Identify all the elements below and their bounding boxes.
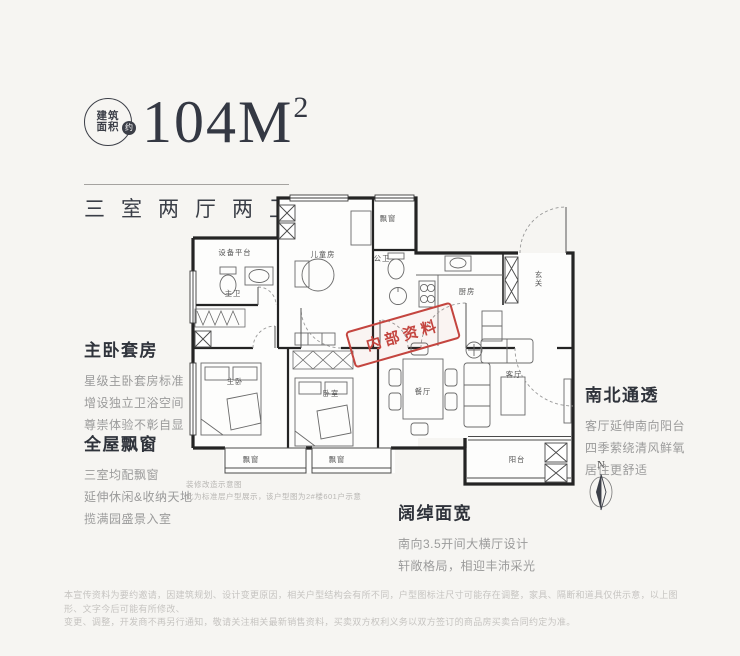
room-label-equipment: 设备平台 [218, 248, 251, 257]
room-label-foyer: 玄关 [535, 270, 544, 287]
room-label-living: 客厅 [506, 370, 523, 379]
room-label-bedroom2: 卧室 [323, 389, 340, 398]
room-label-public-bath: 公卫 [374, 254, 391, 263]
legal-disclaimer: 本宣传资料为要约邀请，因建筑规划、设计变更原因，相关户型结构会有所不同，户型图标… [64, 589, 680, 630]
feature-line: 客厅延伸南向阳台 [585, 415, 735, 437]
feature-title: 南北通透 [585, 381, 735, 406]
floorplan-poster: 建筑 面积 约 104M2 三室两厅两卫 [0, 0, 740, 656]
plan-note-line1: 装修改造示意图 [186, 479, 361, 491]
disclaimer-line2: 变更、调整，开发商不再另行通知，敬请关注相关最新销售资料，买卖双方权利义务以双方… [64, 616, 680, 630]
badge-line2: 面积 [97, 122, 120, 134]
plan-note-line2: 此为标准层户型展示，该户型图为2#楼601户示意 [186, 491, 361, 503]
feature-title: 阔绰面宽 [398, 499, 583, 524]
feature-title: 全屋飘窗 [84, 430, 244, 455]
room-label-bay-mid: 飘窗 [329, 455, 346, 464]
disclaimer-line1: 本宣传资料为要约邀请，因建筑规划、设计变更原因，相关户型结构会有所不同，户型图标… [64, 589, 680, 616]
room-label-dining: 餐厅 [415, 387, 432, 396]
feature-line: 揽满园盛景入室 [84, 508, 244, 530]
feature-north-south: 南北通透 客厅延伸南向阳台 四季萦绕清风鲜氧 居住更舒适 [585, 381, 735, 481]
room-label-bay-top: 飘窗 [380, 214, 397, 223]
feature-line: 四季萦绕清风鲜氧 [585, 437, 735, 459]
room-label-master-bath: 主卫 [225, 289, 242, 298]
approx-dot: 约 [122, 121, 136, 135]
plan-note: 装修改造示意图 此为标准层户型展示，该户型图为2#楼601户示意 [186, 479, 361, 502]
title-divider [84, 184, 289, 185]
header: 建筑 面积 约 104M2 [84, 92, 308, 152]
feature-line: 居住更舒适 [585, 459, 735, 481]
building-area-badge: 建筑 面积 约 [84, 98, 132, 146]
feature-wide-frontage: 阔绰面宽 南向3.5开间大横厅设计 轩敞格局，相迎丰沛采光 [398, 499, 583, 577]
page-title: 104M2 [142, 92, 308, 152]
room-label-bay-left: 飘窗 [243, 455, 260, 464]
feature-line: 轩敞格局，相迎丰沛采光 [398, 555, 583, 577]
feature-title: 主卧套房 [84, 336, 234, 361]
area-sup: 2 [293, 91, 308, 124]
area-value: 104M [142, 89, 293, 155]
room-label-kids-room: 儿童房 [311, 250, 336, 259]
feature-line: 增设独立卫浴空间 [84, 392, 234, 414]
feature-line: 星级主卧套房标准 [84, 370, 234, 392]
feature-line: 南向3.5开间大横厅设计 [398, 533, 583, 555]
feature-master-suite: 主卧套房 星级主卧套房标准 增设独立卫浴空间 尊崇体验不彰自显 [84, 336, 234, 436]
room-label-kitchen: 厨房 [459, 287, 476, 296]
room-label-balcony: 阳台 [509, 455, 526, 464]
